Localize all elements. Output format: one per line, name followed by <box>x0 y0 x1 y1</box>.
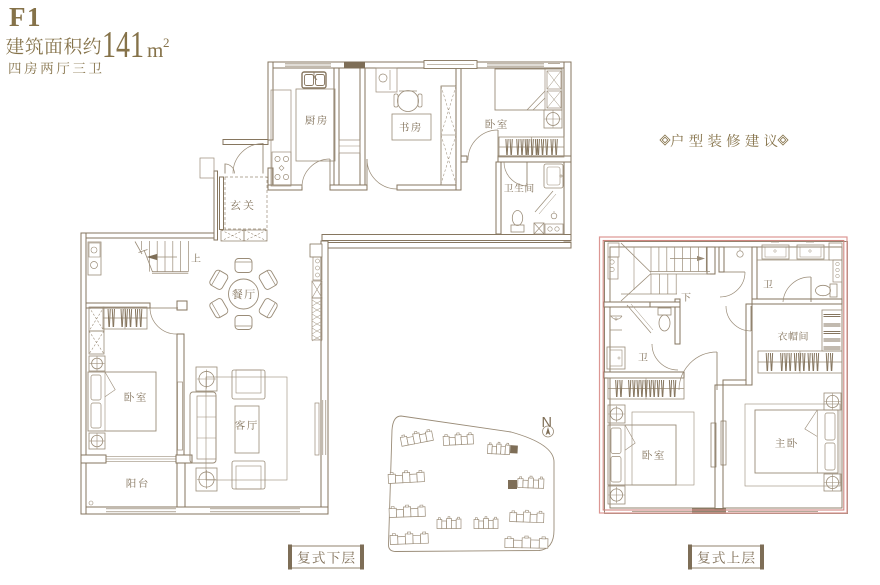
svg-text:2: 2 <box>163 35 170 50</box>
svg-text:141: 141 <box>102 24 144 66</box>
svg-text:F1: F1 <box>9 2 42 32</box>
svg-text:m: m <box>147 38 163 62</box>
